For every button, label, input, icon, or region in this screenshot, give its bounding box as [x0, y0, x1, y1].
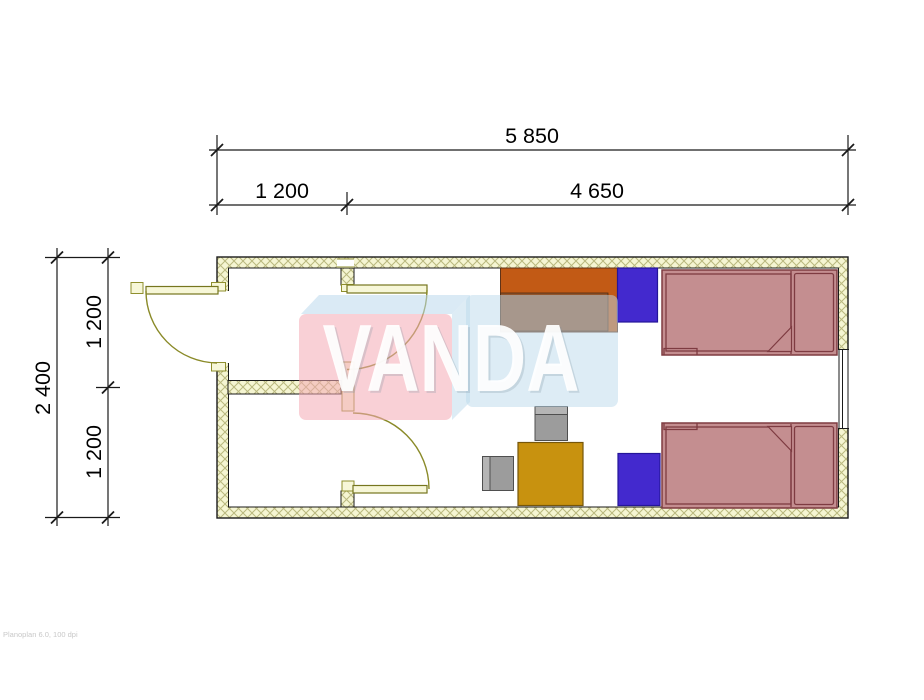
entrance-door: [131, 283, 230, 372]
dimension-label: 1 200: [82, 295, 106, 349]
door-jamb: [212, 363, 226, 372]
window: [838, 349, 850, 429]
dimension-top-segments: 1 200 4 650: [209, 179, 856, 215]
door-leaf: [146, 287, 218, 295]
door-swing-arc: [146, 291, 217, 363]
dimension-label: 4 650: [570, 179, 624, 203]
door-leaf: [347, 285, 427, 293]
top-wall-junction-break: [337, 258, 354, 267]
dimension-label: 5 850: [505, 124, 559, 148]
floor-plan-drawing: VANDA VANDA 5 850 1 200 4 650: [0, 0, 924, 700]
door-jamb: [342, 481, 354, 491]
dimension-label: 2 400: [31, 361, 55, 415]
partition-stub-top: [341, 268, 354, 285]
dimension-side-segments: 1 200 1 200: [82, 248, 120, 526]
nightstand-top: [618, 268, 658, 322]
door-end-cap: [131, 283, 143, 294]
watermark: VANDA VANDA: [299, 295, 618, 420]
door-opening: [216, 291, 230, 363]
bed-top: [662, 270, 837, 355]
floor-plan-page: VANDA VANDA 5 850 1 200 4 650: [0, 0, 924, 700]
watermark-text: VANDA: [323, 305, 580, 412]
table: [518, 443, 583, 506]
chair-side: [483, 457, 514, 491]
dimension-label: 1 200: [255, 179, 309, 203]
chair-back: [483, 457, 491, 491]
partition-stub-bottom: [341, 491, 354, 507]
bed-bottom: [662, 423, 837, 508]
dimension-label: 1 200: [82, 425, 106, 479]
nightstand-bottom: [618, 454, 660, 506]
footer-watermark: Planoplan 6.0, 100 dpi: [3, 630, 78, 639]
door-leaf: [353, 486, 427, 494]
